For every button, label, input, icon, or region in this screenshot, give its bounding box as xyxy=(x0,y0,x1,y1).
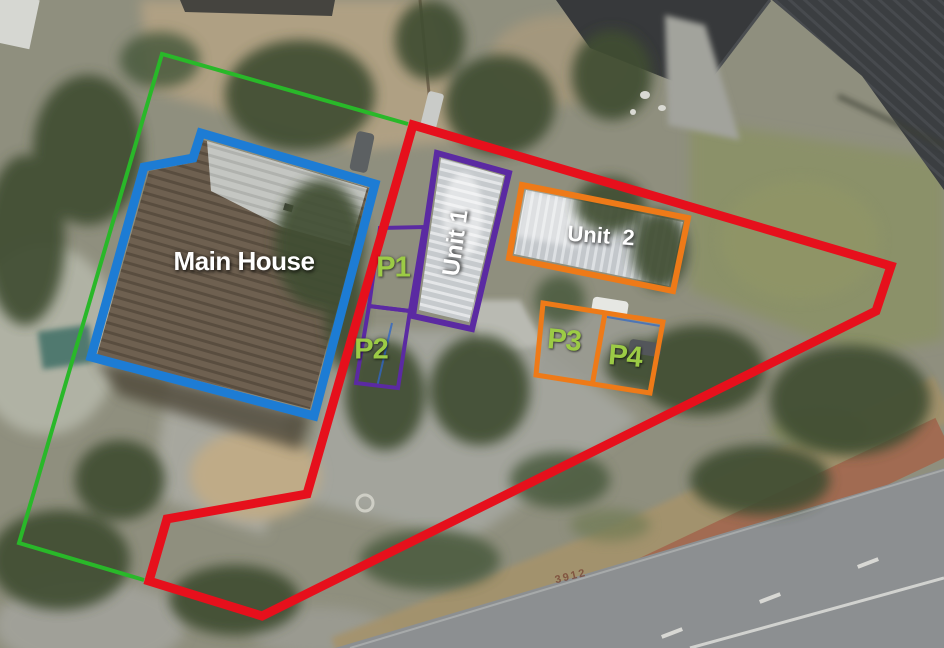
label-p3: P3 xyxy=(546,325,582,357)
label-unit-2: Unit 2 xyxy=(567,223,636,250)
satellite-photo xyxy=(0,0,944,648)
label-p1: P1 xyxy=(376,254,409,283)
label-p2: P2 xyxy=(354,336,387,365)
label-main-house: Main House xyxy=(174,248,315,274)
aerial-property-map: Main House Unit 1 Unit 2 P1 P2 P3 P4 391… xyxy=(0,0,944,648)
label-p4: P4 xyxy=(607,341,643,373)
